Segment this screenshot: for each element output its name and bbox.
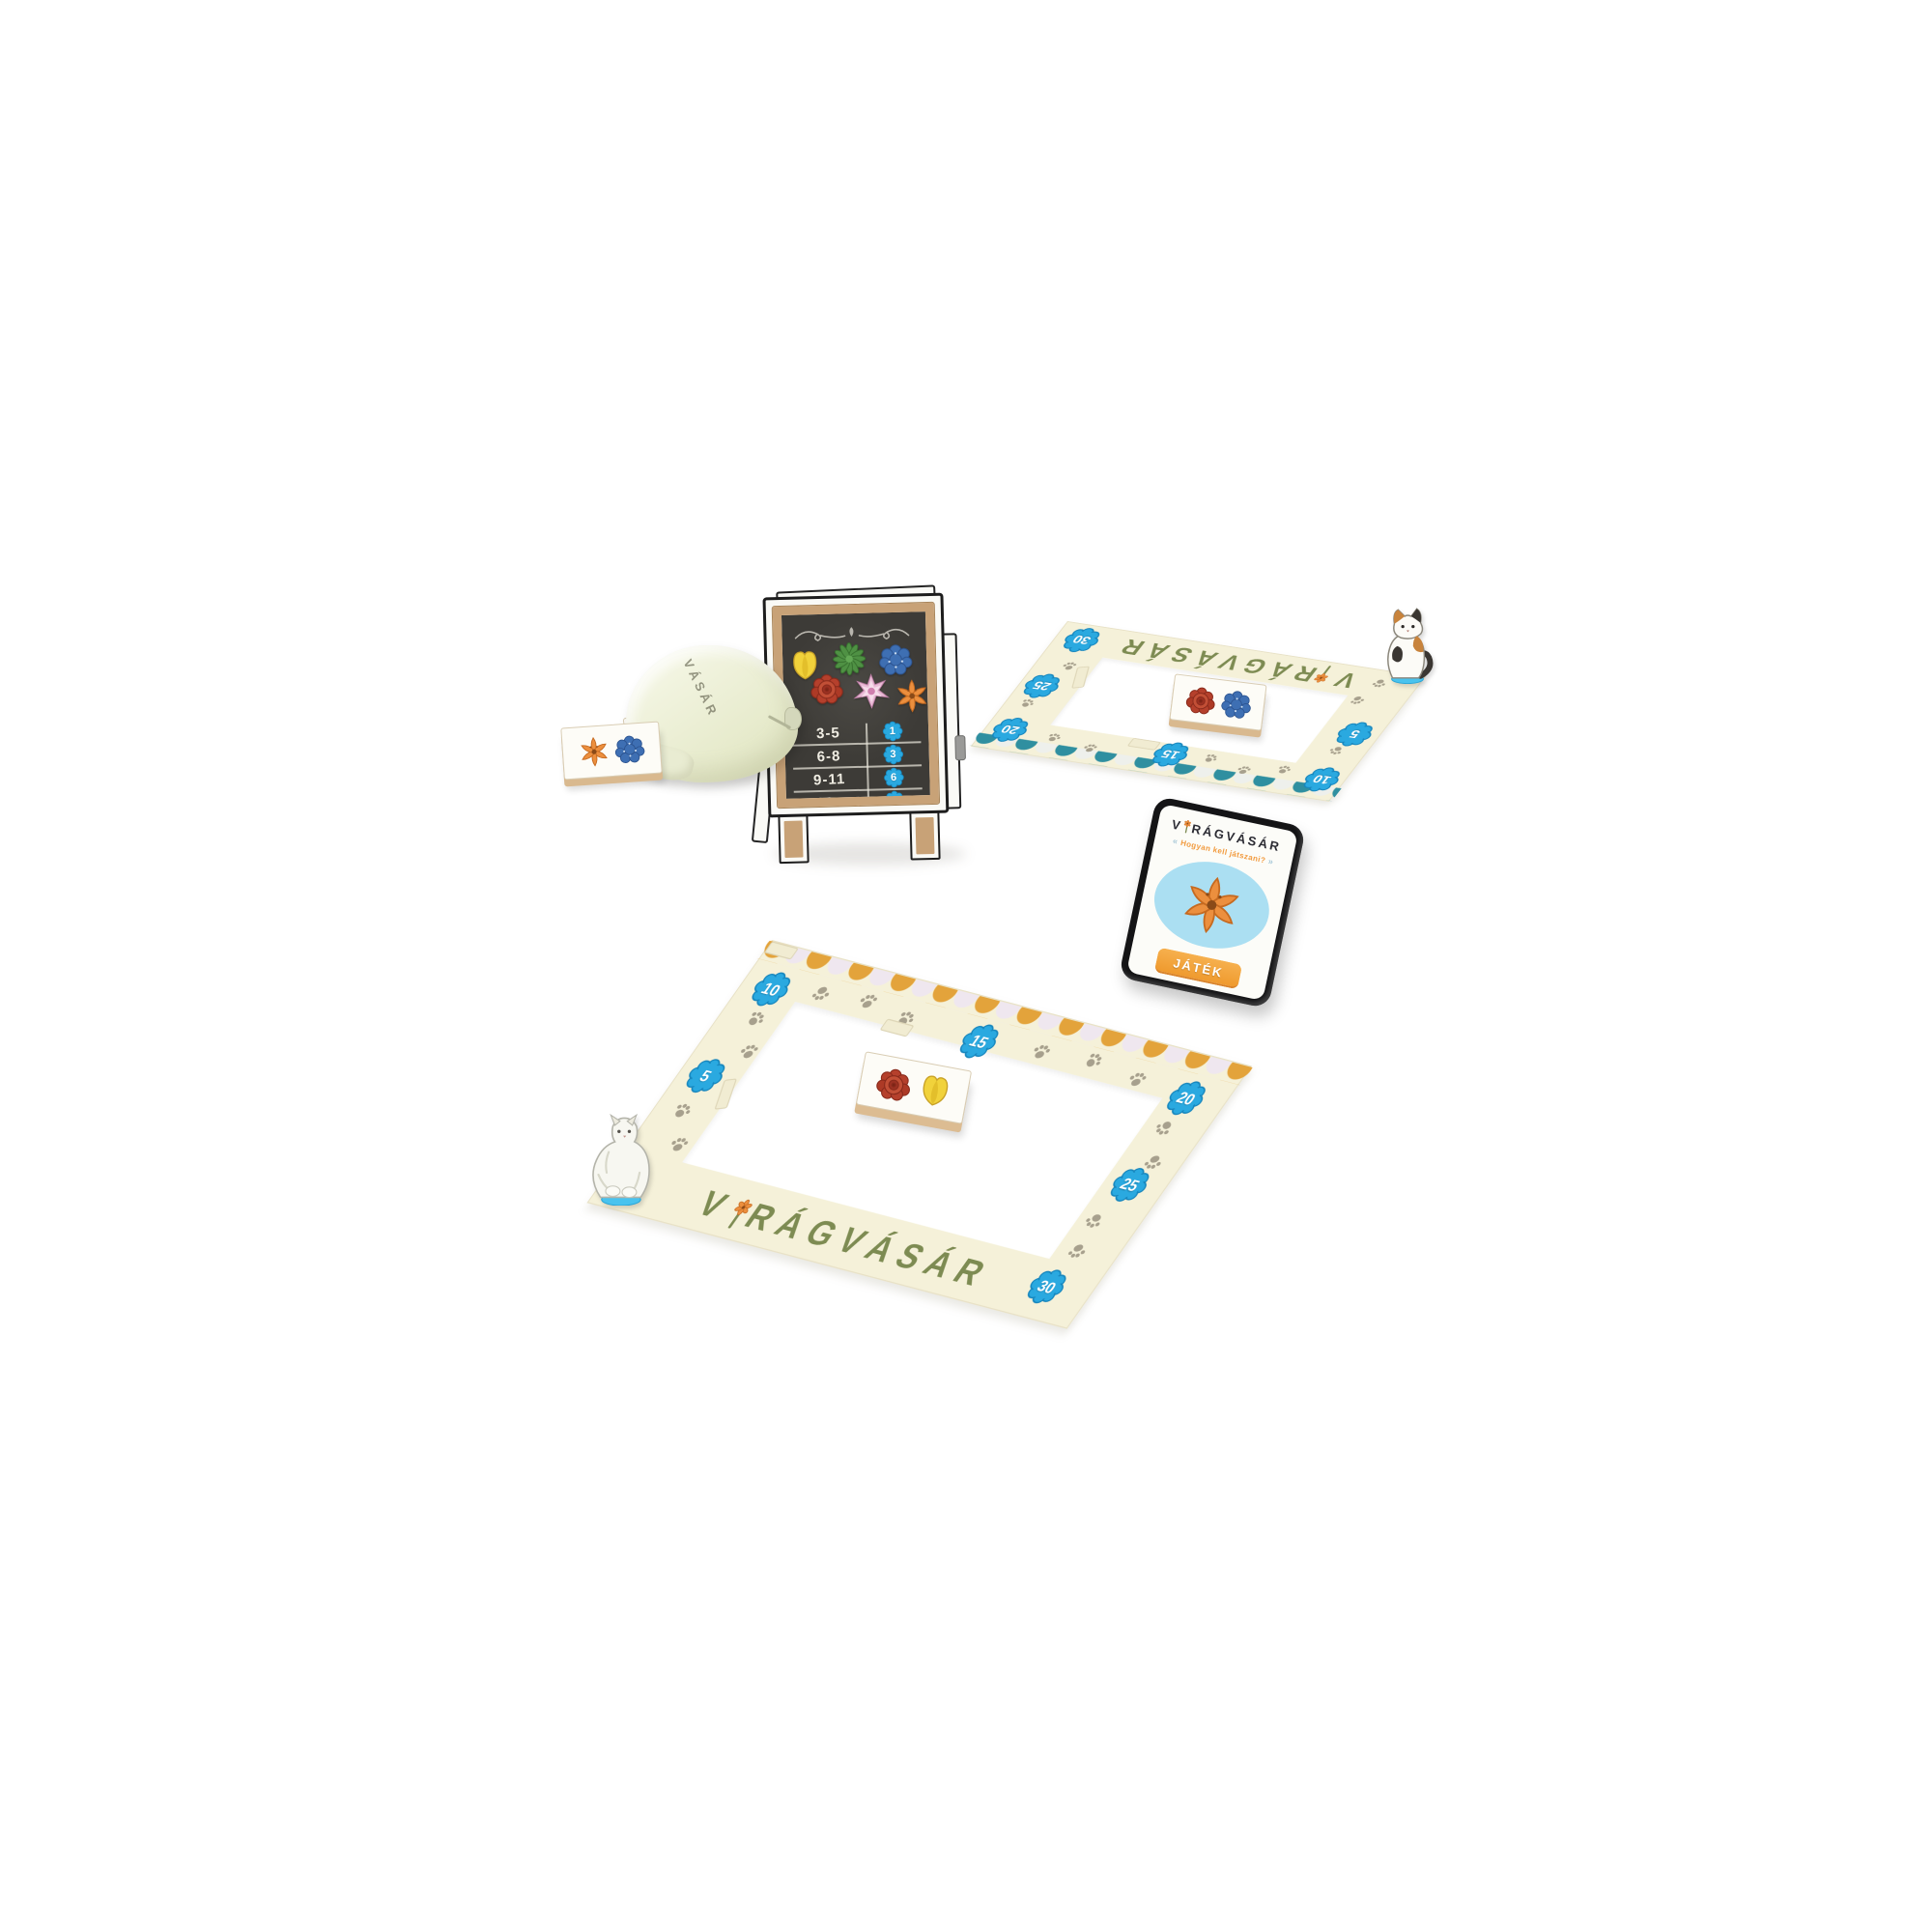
paw-print-icon [1323,743,1350,758]
chevron-left-icon: « [1172,836,1179,846]
flower-count-range: 3-5 [792,724,865,743]
paw-print-icon [1122,1068,1153,1091]
flower-count-range: 9-11 [793,770,866,789]
paw-print-icon [853,989,883,1013]
price-row: 9-11 6 [793,766,923,792]
flower-count-range: 6-8 [792,747,865,766]
pink-dahlia-icon [853,672,891,710]
orange-lily-icon [894,677,931,715]
game-board-bottom: V RÁGVÁSÁR 5 10 15 20 25 30 [586,940,1252,1329]
play-button: JÁTÉK [1154,948,1242,990]
smartphone: V RÁGVÁSÁR « Hogyan kell játszani? » JÁT… [1119,796,1306,1009]
paw-print-icon [1063,1239,1093,1264]
flower-count-range: 12+ [794,793,867,809]
orange-lily-icon [576,734,611,769]
calico-cat-standee [1379,605,1435,684]
red-rose-icon [871,1062,917,1107]
orange-lily-icon [1174,867,1249,943]
red-rose-icon [1182,682,1219,719]
price-points: 6 [866,766,923,789]
paw-print-icon [1147,1114,1180,1143]
chevron-right-icon: » [1267,856,1274,867]
easel-metal-clip [954,735,966,760]
paw-print-icon [1198,750,1224,766]
price-row: 6-8 3 [793,743,923,769]
white-cat-standee [585,1111,659,1206]
score-badge-30: 30 [1055,625,1108,656]
price-points: 3 [865,743,922,766]
blue-hydrangea-icon [611,732,646,767]
calico-cat-icon [1379,605,1435,684]
phone-screen: V RÁGVÁSÁR « Hogyan kell játszani? » JÁT… [1126,804,1298,1001]
board-game-product-photo: V RÁGVÁSÁR 30 25 20 15 10 5 [0,0,1932,1932]
paw-print-icon [1271,762,1296,778]
price-points: 1 [864,720,921,743]
price-row: 12+ 10 [794,789,923,808]
price-table: 3-5 1 6-8 3 [792,720,923,808]
easel-leg [778,814,809,864]
score-badge-10: 10 [743,967,801,1011]
points-badge: 1 [882,721,904,743]
flower-illustration-circle [1147,851,1278,958]
easel-leg [909,811,940,861]
paw-print-icon [1138,1151,1170,1174]
easel-leg-wood [784,820,804,857]
red-rose-icon [808,669,845,707]
score-badge-10: 10 [1295,764,1349,795]
points-badge: 6 [883,767,905,789]
points-badge: 3 [882,744,904,766]
price-points: 10 [866,789,923,808]
easel-leg-wood [915,817,934,854]
paw-print-icon [666,1096,699,1124]
paw-print-icon [806,981,836,1006]
score-badge-25: 25 [1015,670,1068,701]
paw-print-icon [1025,1040,1058,1064]
white-cat-icon [585,1111,659,1206]
flower-tile [560,722,663,781]
points-badge: 10 [883,790,905,808]
paw-print-icon [1349,693,1367,708]
price-row: 3-5 1 [792,720,922,746]
blue-hydrangea-icon [1217,686,1254,723]
yellow-tulip-icon [912,1069,957,1115]
